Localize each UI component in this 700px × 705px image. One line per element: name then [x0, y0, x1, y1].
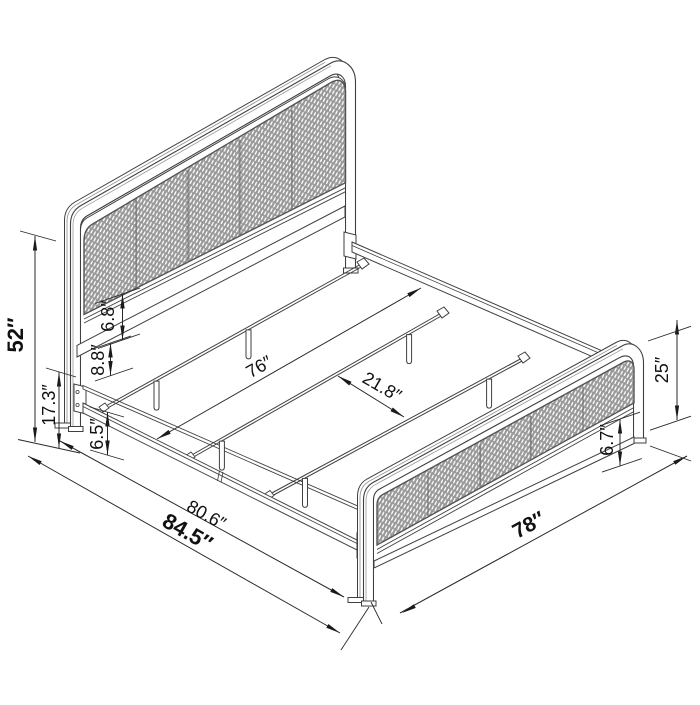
svg-text:52″: 52″ [3, 317, 28, 352]
svg-text:6.7″: 6.7″ [597, 424, 617, 456]
svg-text:6.5″: 6.5″ [87, 418, 107, 450]
svg-text:25″: 25″ [652, 356, 672, 383]
svg-text:6.8″: 6.8″ [98, 300, 118, 332]
svg-text:17.3″: 17.3″ [39, 384, 59, 426]
